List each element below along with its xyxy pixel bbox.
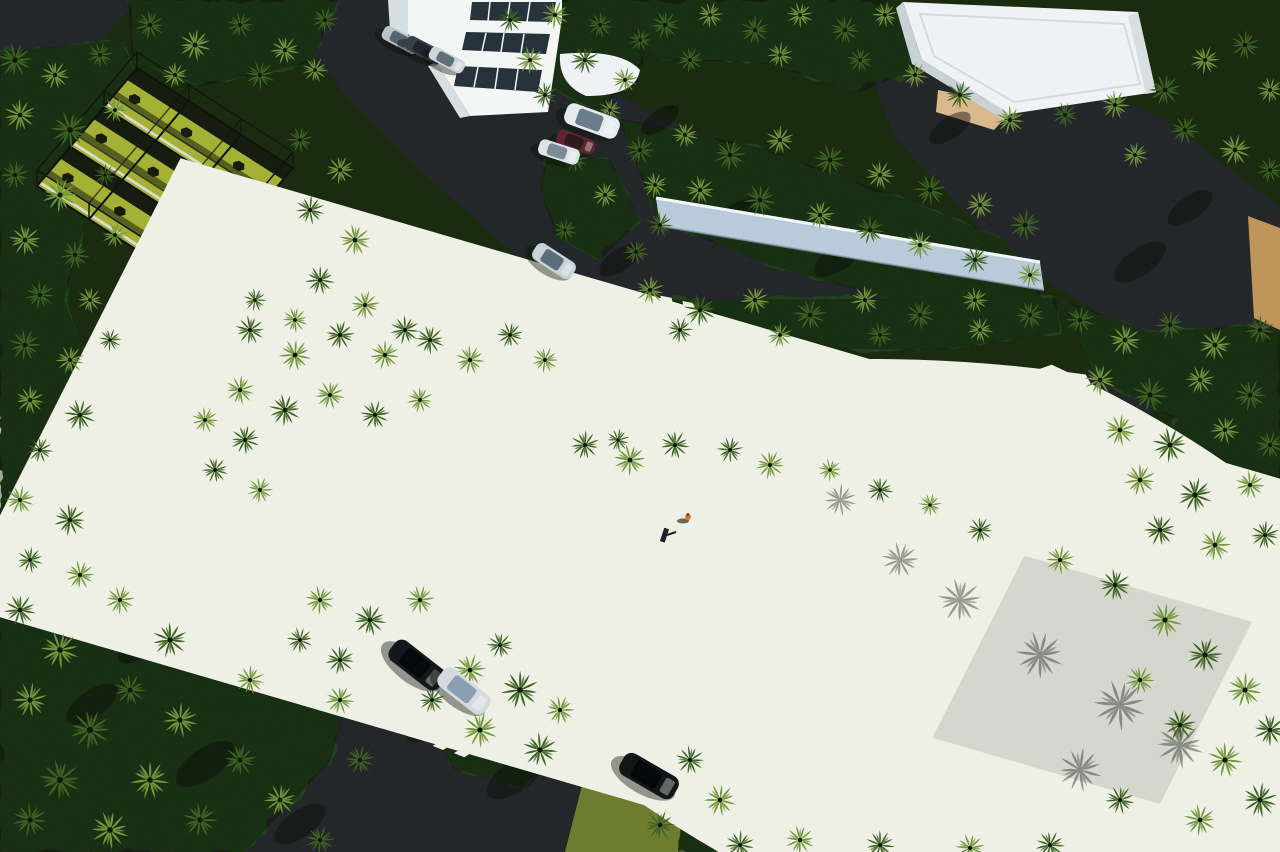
aerial-photo-stage: Aerial drone view of a tropical resort s… [0, 0, 1280, 852]
aerial-scene [0, 0, 1280, 852]
basketball-court [618, 464, 1252, 804]
